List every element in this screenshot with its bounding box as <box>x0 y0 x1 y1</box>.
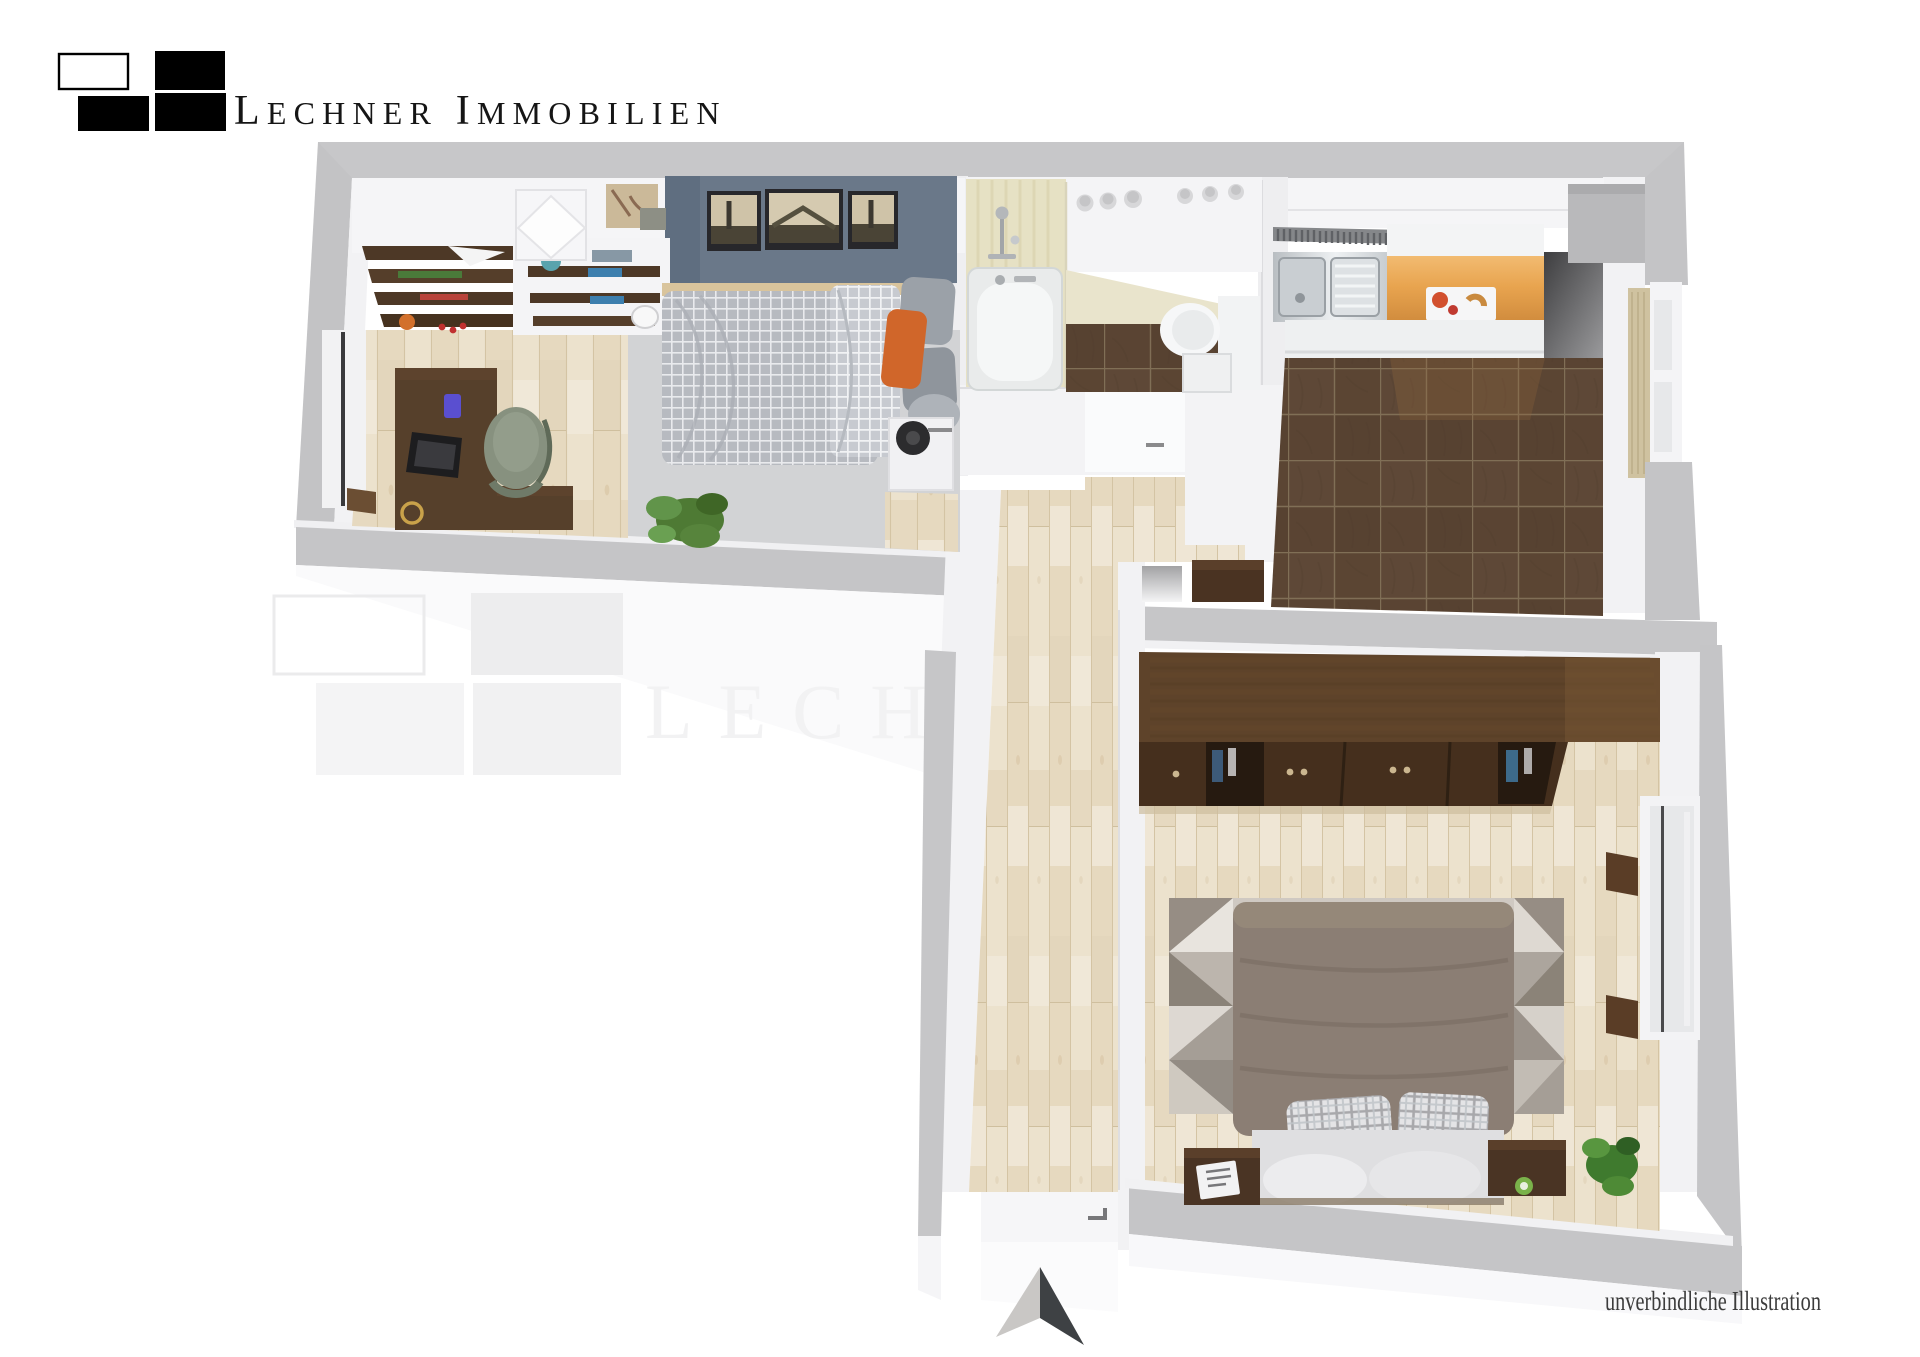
svg-text:unverbindliche Illustration: unverbindliche Illustration <box>1605 1286 1821 1316</box>
svg-text:LECHNER IMMOBILIEN: LECHNER IMMOBILIEN <box>234 88 727 134</box>
